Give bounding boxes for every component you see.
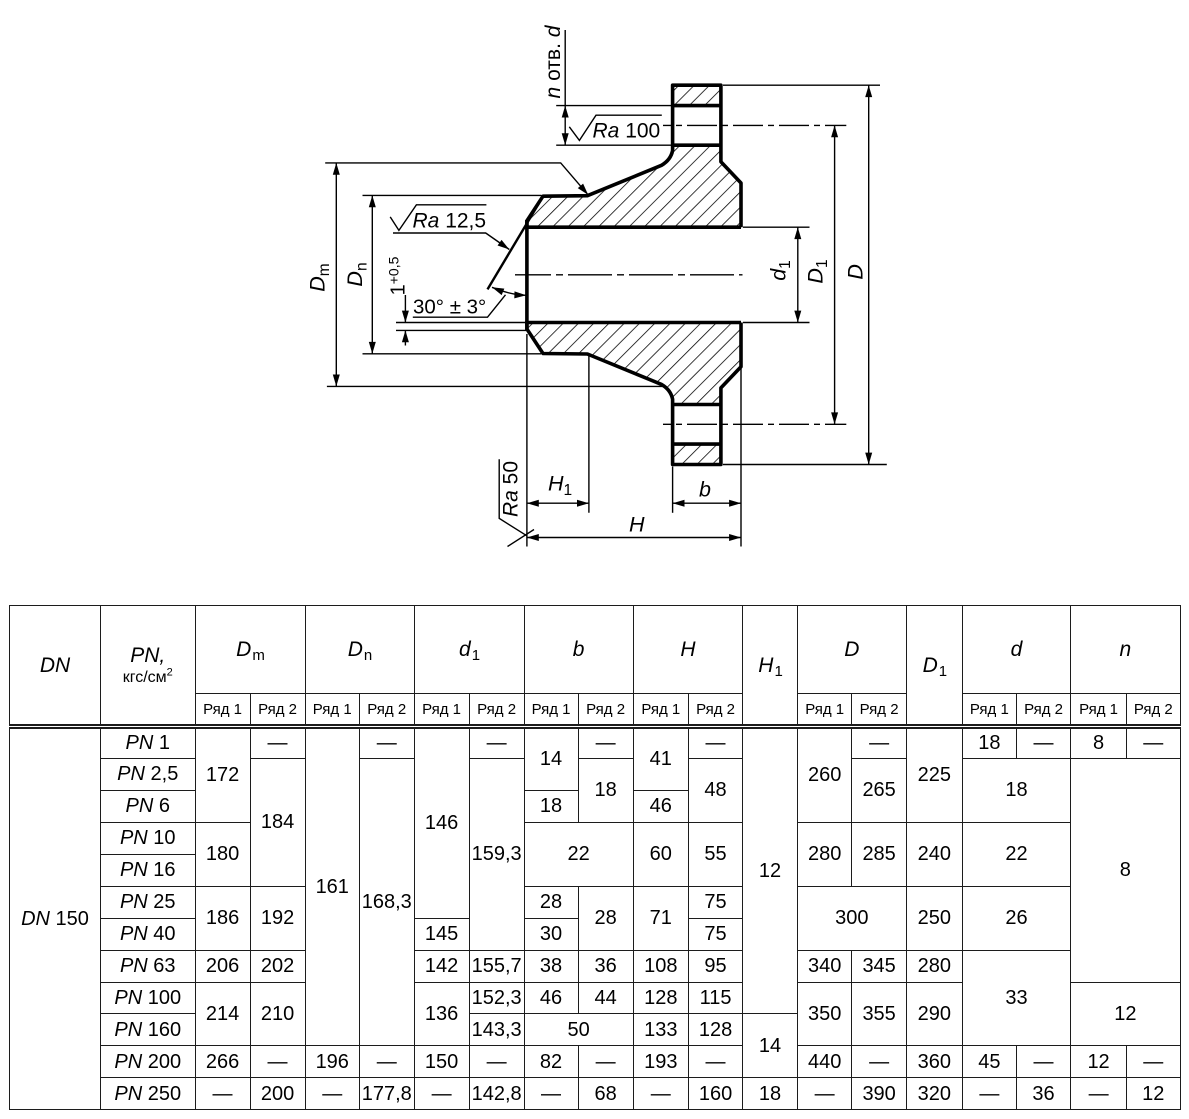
svg-text:Ra 50: Ra 50: [500, 461, 523, 517]
svg-text:30° ± 3°: 30° ± 3°: [413, 296, 486, 319]
svg-text:Dm: Dm: [306, 263, 334, 291]
svg-text:D1: D1: [804, 259, 832, 283]
svg-text:d1: d1: [767, 260, 795, 281]
svg-text:H: H: [629, 513, 645, 537]
svg-text:H1: H1: [548, 472, 572, 500]
svg-text:b: b: [699, 478, 711, 502]
svg-text:D: D: [844, 264, 868, 280]
svg-text:Ra 12,5: Ra 12,5: [413, 210, 487, 233]
svg-text:Ra 100: Ra 100: [593, 119, 661, 142]
svg-text:Dn: Dn: [343, 262, 371, 286]
svg-text:n отв. d: n отв. d: [542, 24, 565, 98]
svg-text:1+0,5: 1+0,5: [386, 256, 410, 295]
